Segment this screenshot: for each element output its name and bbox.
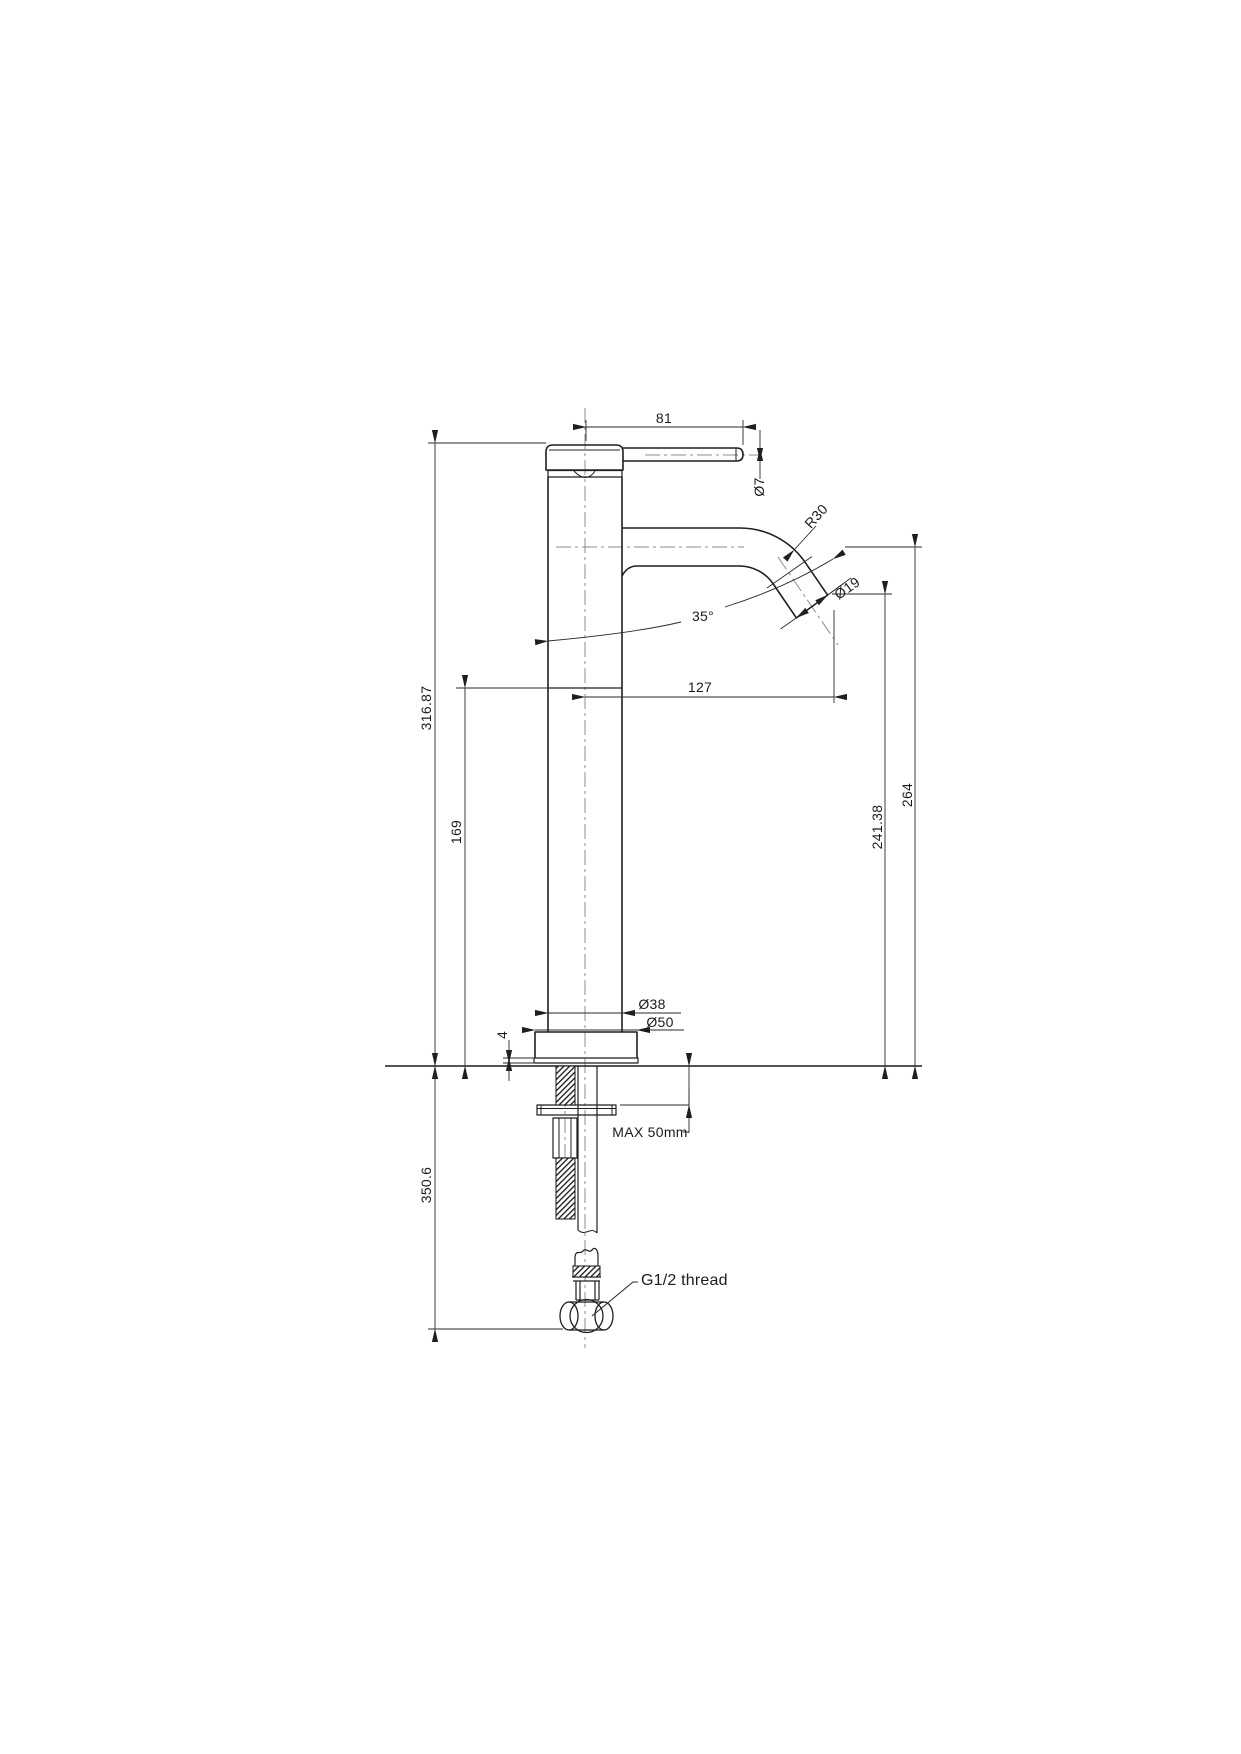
dim-label-lever-diameter: Ø7 — [751, 477, 767, 496]
faucet-outline — [385, 445, 922, 1333]
drawing-sheet: 81 Ø7 R30 Ø19 35° 127 316.87 169 241.38 … — [0, 0, 1241, 1754]
dim-label-lever-length: 81 — [656, 410, 672, 426]
dim-label-spout-centre-height: 264 — [899, 783, 915, 807]
dim-label-spout-reach: 127 — [688, 679, 712, 695]
label-thread-note: G1/2 thread — [641, 1272, 728, 1290]
fitting-top — [575, 1248, 598, 1266]
fitting-collar — [572, 1277, 601, 1281]
g12-thread-band — [573, 1266, 600, 1277]
fitting-nut-left — [560, 1302, 578, 1330]
outlet-axis-centerline — [778, 557, 838, 645]
fitting-nut-edges — [569, 1302, 604, 1330]
dim-label-spout-angle: 35° — [692, 608, 714, 624]
clamp-washer-lines — [537, 1105, 616, 1115]
dim-label-spout-outlet-height: 241.38 — [869, 805, 885, 850]
drawing-canvas — [0, 0, 1241, 1754]
supply-hose — [578, 1066, 597, 1233]
dim-35-arc-left — [548, 622, 681, 641]
fixing-stud-upper — [556, 1066, 575, 1105]
base-flange — [535, 1032, 637, 1058]
ext-4 — [503, 1058, 536, 1063]
dim-label-body-diameter: Ø38 — [638, 996, 665, 1012]
dim-label-base-diameter: Ø50 — [646, 1014, 673, 1030]
dimension-linework — [428, 420, 922, 1329]
dim-19-arrow2 — [781, 618, 797, 629]
spout — [622, 528, 828, 618]
fixing-stud-lower — [556, 1158, 575, 1219]
dim-label-upper-body-height: 169 — [448, 820, 464, 844]
fitting-nut-face — [570, 1300, 603, 1333]
fitting-body — [576, 1281, 599, 1300]
dim-label-plate-thickness: 4 — [494, 1031, 510, 1039]
dim-label-max-deck-thickness: MAX 50mm — [612, 1124, 688, 1140]
hose-break — [578, 1230, 597, 1233]
dim-label-below-deck-height: 350.6 — [418, 1167, 434, 1204]
centerlines — [556, 408, 838, 1348]
dim-label-overall-height: 316.87 — [418, 686, 434, 731]
base-plate — [534, 1058, 638, 1063]
ext-19-upper — [767, 557, 812, 589]
clamp-washer — [537, 1105, 616, 1115]
